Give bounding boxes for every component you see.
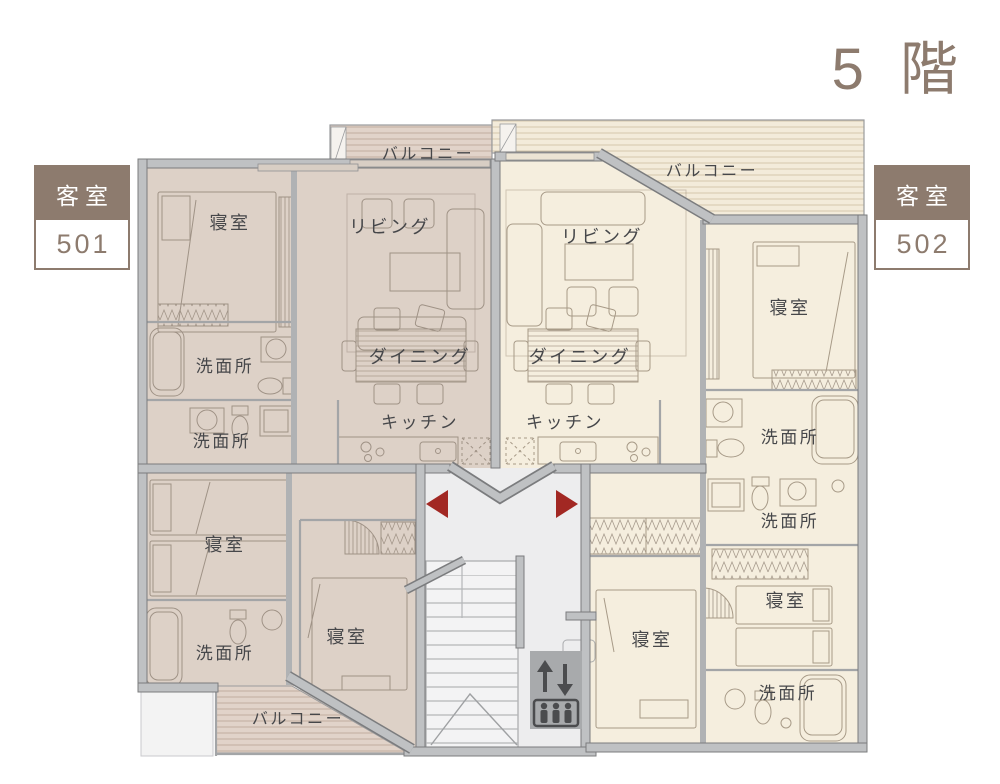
balcony-label: バルコニー — [666, 161, 758, 180]
exterior-void — [141, 686, 213, 756]
living-label: リビング — [349, 217, 431, 238]
dining-label: ダイニング — [529, 347, 632, 368]
washroom-label: 洗面所 — [196, 644, 255, 664]
living-label: リビング — [561, 227, 643, 248]
bedroom-label: 寝室 — [205, 535, 246, 556]
washroom-label: 洗面所 — [759, 684, 818, 704]
balcony-label: バルコニー — [252, 709, 344, 728]
washroom-label: 洗面所 — [761, 428, 820, 448]
washroom-label: 洗面所 — [193, 432, 252, 452]
bedroom-label: 寝室 — [327, 627, 368, 648]
balcony-label: バルコニー — [382, 144, 474, 163]
bedroom-label: 寝室 — [632, 630, 673, 651]
washroom-label: 洗面所 — [761, 512, 820, 532]
elevator-icon — [530, 651, 582, 729]
stairs — [426, 561, 518, 748]
floor-plan-page: 5 階 客室 501 客室 502 — [0, 0, 1000, 784]
kitchen-label: キッチン — [381, 413, 459, 433]
dining-label: ダイニング — [369, 347, 472, 368]
floor-plan: バルコニー バルコニー バルコニー リビング リビング ダイニング ダイニング … — [0, 0, 1000, 784]
bedroom-label: 寝室 — [766, 591, 807, 612]
bedroom-label: 寝室 — [770, 298, 811, 319]
kitchen-label: キッチン — [526, 413, 604, 433]
washroom-label: 洗面所 — [196, 357, 255, 377]
bedroom-label: 寝室 — [210, 213, 251, 234]
